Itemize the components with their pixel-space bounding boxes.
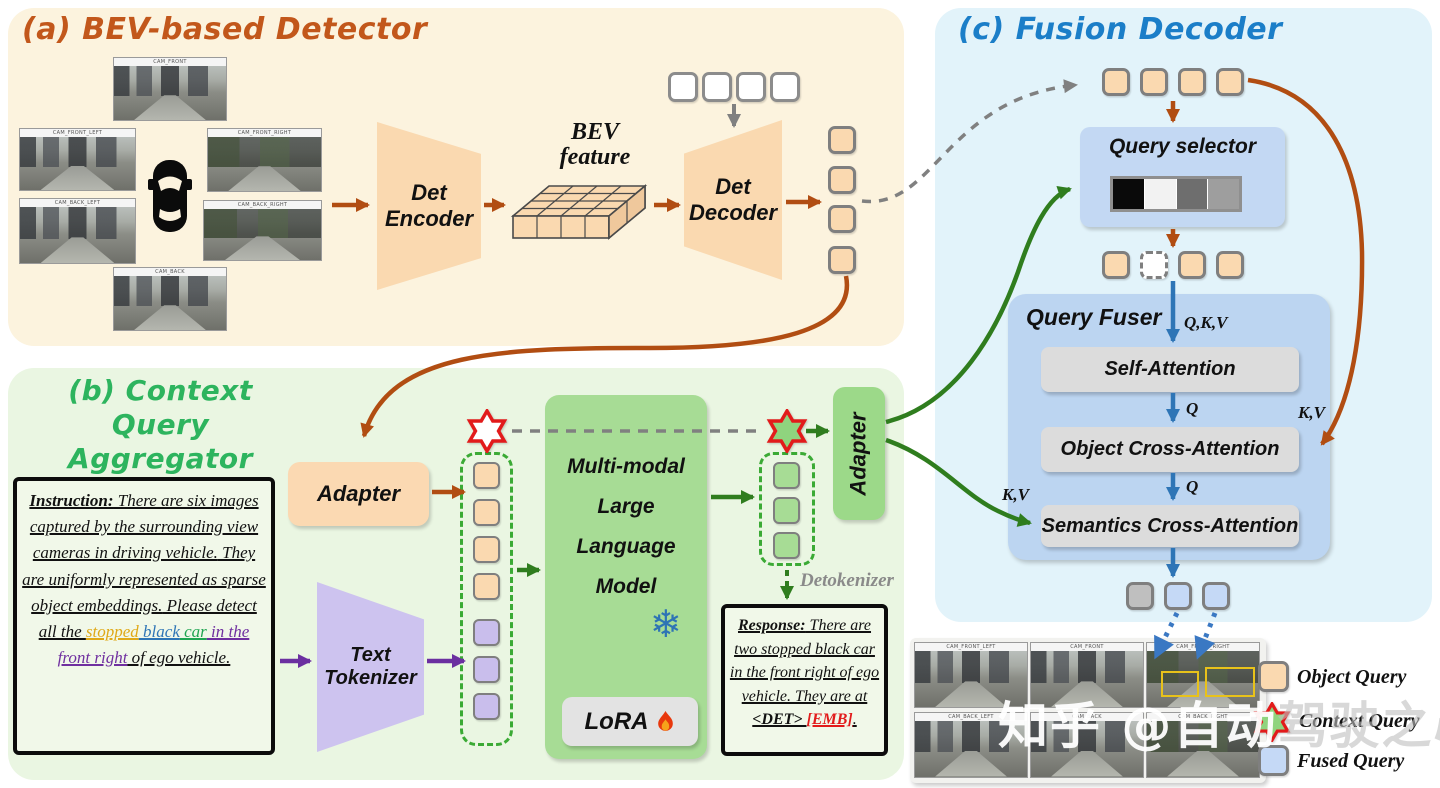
- watermark-part2: 驾驶之心: [1277, 697, 1440, 755]
- ego-car-icon: [147, 157, 193, 235]
- mllm-line3: Language: [545, 527, 707, 567]
- context-query-star-icon: [465, 409, 509, 453]
- panel-b-title: (b) Context Query Aggregator: [18, 374, 303, 476]
- det-encoder-line1: Det: [411, 180, 446, 206]
- camera-label: CAM_FRONT: [1031, 643, 1143, 651]
- learnable-query-token: [668, 72, 698, 102]
- response-box: Response: There are two stopped black ca…: [721, 604, 888, 756]
- semantics-cross-attention-label: Semantics Cross-Attention: [1042, 515, 1299, 538]
- det-encoder-line2: Encoder: [385, 206, 473, 232]
- semantic-token: [773, 532, 800, 559]
- panel-a-title: (a) BEV-based Detector: [22, 12, 427, 47]
- watermark: 知乎 @自动驾驶之心: [998, 686, 1440, 758]
- camera-label: CAM_FRONT_RIGHT: [208, 129, 321, 137]
- instruction-label: Instruction:: [29, 491, 113, 510]
- camera-label: CAM_FRONT: [114, 58, 226, 66]
- self-attention-block: Self-Attention: [1041, 347, 1299, 392]
- text-tokenizer-line2: Tokenizer: [324, 667, 417, 690]
- det-decoder-line1: Det: [715, 174, 750, 200]
- instruction-text: of ego vehicle.: [127, 648, 230, 667]
- adapter-out-block: Adapter: [833, 387, 885, 520]
- panel-c-title: (c) Fusion Decoder: [958, 12, 1282, 47]
- object-query-token: [1140, 68, 1168, 96]
- watermark-part1: 知乎 @自动: [998, 697, 1277, 755]
- camera-image-back-left: CAM_BACK_LEFT: [19, 198, 136, 264]
- mllm-line1: Multi-modal: [545, 447, 707, 487]
- object-query-token: [828, 126, 856, 154]
- response-emb-tag: [EMB]: [807, 711, 853, 728]
- adapter-in-label: Adapter: [317, 481, 400, 507]
- score-cell-3: [1177, 179, 1209, 209]
- object-query-token: [473, 536, 500, 563]
- object-query-token: [1102, 251, 1130, 279]
- instruction-box: Instruction: There are six images captur…: [13, 477, 275, 755]
- fused-query-token-bg: [1126, 582, 1154, 610]
- bev-label-line1: BEV: [535, 120, 655, 145]
- bev-label-line2: feature: [535, 145, 655, 170]
- bev-feature-label: BEV feature: [535, 120, 655, 170]
- camera-label: CAM_FRONT_LEFT: [20, 129, 135, 137]
- text-token: [473, 693, 500, 720]
- adapter-in-block: Adapter: [288, 462, 429, 526]
- text-tokenizer-line1: Text: [350, 644, 390, 667]
- score-cell-1: [1113, 179, 1145, 209]
- camera-image-back-right: CAM_BACK_RIGHT: [203, 200, 322, 261]
- fused-query-token: [1164, 582, 1192, 610]
- flame-icon: [656, 710, 675, 733]
- text-token: [473, 619, 500, 646]
- detokenizer-label: Detokenizer: [800, 570, 894, 592]
- panel-b-title-line2: Aggregator: [18, 442, 303, 476]
- object-query-token: [828, 166, 856, 194]
- text-token: [473, 656, 500, 683]
- camera-image-front-left: CAM_FRONT_LEFT: [19, 128, 136, 191]
- object-query-token: [828, 246, 856, 274]
- object-cross-attention-block: Object Cross-Attention: [1041, 427, 1299, 472]
- learnable-query-token: [736, 72, 766, 102]
- camera-image-front-right: CAM_FRONT_RIGHT: [207, 128, 322, 192]
- response-label: Response:: [738, 617, 806, 634]
- object-cross-attention-label: Object Cross-Attention: [1061, 438, 1280, 461]
- self-attention-label: Self-Attention: [1104, 358, 1235, 381]
- object-query-token: [473, 499, 500, 526]
- object-query-token: [1178, 251, 1206, 279]
- object-query-token: [1102, 68, 1130, 96]
- camera-label: CAM_BACK_LEFT: [20, 199, 135, 207]
- instruction-word-car: car: [180, 622, 207, 641]
- camera-label: CAM_BACK_RIGHT: [204, 201, 321, 209]
- lora-block: LoRA: [562, 697, 698, 746]
- query-selector-label: Query selector: [1080, 135, 1285, 159]
- mllm-line4: Model: [545, 567, 707, 607]
- learnable-query-token: [770, 72, 800, 102]
- mllm-line2: Large: [545, 487, 707, 527]
- instruction-word-stopped: stopped: [86, 622, 139, 641]
- object-query-token: [1216, 68, 1244, 96]
- camera-image-back: CAM_BACK: [113, 267, 227, 331]
- instruction-word-black: black: [139, 622, 180, 641]
- object-query-token: [473, 573, 500, 600]
- object-query-token: [1178, 68, 1206, 96]
- query-score-bar: [1110, 176, 1242, 212]
- query-fuser-label: Query Fuser: [1026, 304, 1330, 331]
- semantics-cross-attention-block: Semantics Cross-Attention: [1041, 505, 1299, 547]
- camera-label: CAM_FRONT_RIGHT: [1147, 643, 1259, 651]
- adapter-out-label: Adapter: [846, 412, 872, 495]
- response-text: .: [853, 711, 857, 728]
- semantic-token: [773, 462, 800, 489]
- dropped-query-token: [1140, 251, 1168, 279]
- q-label-self: Q: [1186, 399, 1198, 419]
- qkv-label: Q,K,V: [1184, 313, 1227, 333]
- kv-label-sem: K,V: [1002, 485, 1029, 505]
- camera-image-front: CAM_FRONT: [113, 57, 227, 121]
- object-query-token: [828, 205, 856, 233]
- score-cell-2: [1145, 179, 1177, 209]
- panel-b-title-line1: (b) Context Query: [18, 374, 303, 442]
- object-query-token: [473, 462, 500, 489]
- context-query-star-icon: [765, 409, 809, 453]
- fused-query-token: [1202, 582, 1230, 610]
- bev-feature-grid-icon: [505, 168, 653, 246]
- object-query-token: [1216, 251, 1244, 279]
- snowflake-icon: ❄: [650, 602, 682, 646]
- semantic-token: [773, 497, 800, 524]
- det-decoder-line2: Decoder: [689, 200, 777, 226]
- camera-label: CAM_BACK: [114, 268, 226, 276]
- learnable-query-token: [702, 72, 732, 102]
- response-det-tag: <DET>: [752, 711, 802, 728]
- kv-label-obj: K,V: [1298, 403, 1325, 423]
- q-label-obj: Q: [1186, 477, 1198, 497]
- camera-label: CAM_FRONT_LEFT: [915, 643, 1027, 651]
- figure-canvas: (a) BEV-based Detector (b) Context Query…: [0, 0, 1440, 788]
- lora-label: LoRA: [585, 708, 649, 736]
- score-cell-4: [1208, 179, 1239, 209]
